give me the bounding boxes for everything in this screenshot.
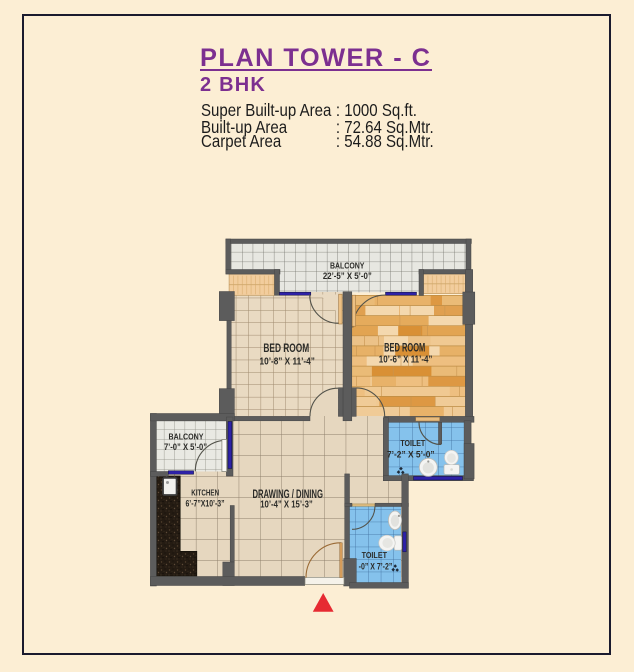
svg-text:TOILET: TOILET <box>400 439 425 448</box>
svg-text:-0” X 7’-2”: -0” X 7’-2” <box>359 562 393 572</box>
svg-text:10’-4” X 15’-3”: 10’-4” X 15’-3” <box>260 500 313 511</box>
svg-text:BED ROOM: BED ROOM <box>263 343 309 355</box>
svg-text:TOILET: TOILET <box>362 551 387 560</box>
svg-text:BALCONY: BALCONY <box>169 433 204 442</box>
svg-text:BED ROOM: BED ROOM <box>384 342 425 354</box>
svg-text:BALCONY: BALCONY <box>330 262 365 271</box>
svg-text:10’-6” X 11’-4”: 10’-6” X 11’-4” <box>379 355 433 366</box>
svg-text:KITCHEN: KITCHEN <box>191 488 219 497</box>
svg-text:10’-8” X 11’-4”: 10’-8” X 11’-4” <box>260 356 315 367</box>
svg-text:7’-0” X 5’-0”: 7’-0” X 5’-0” <box>164 442 207 452</box>
svg-text:7’-2” X 5’-0”: 7’-2” X 5’-0” <box>387 450 435 460</box>
svg-text:6’-7”X10’-3”: 6’-7”X10’-3” <box>185 498 224 508</box>
svg-text:22’-5” X 5’-0”: 22’-5” X 5’-0” <box>323 271 372 281</box>
